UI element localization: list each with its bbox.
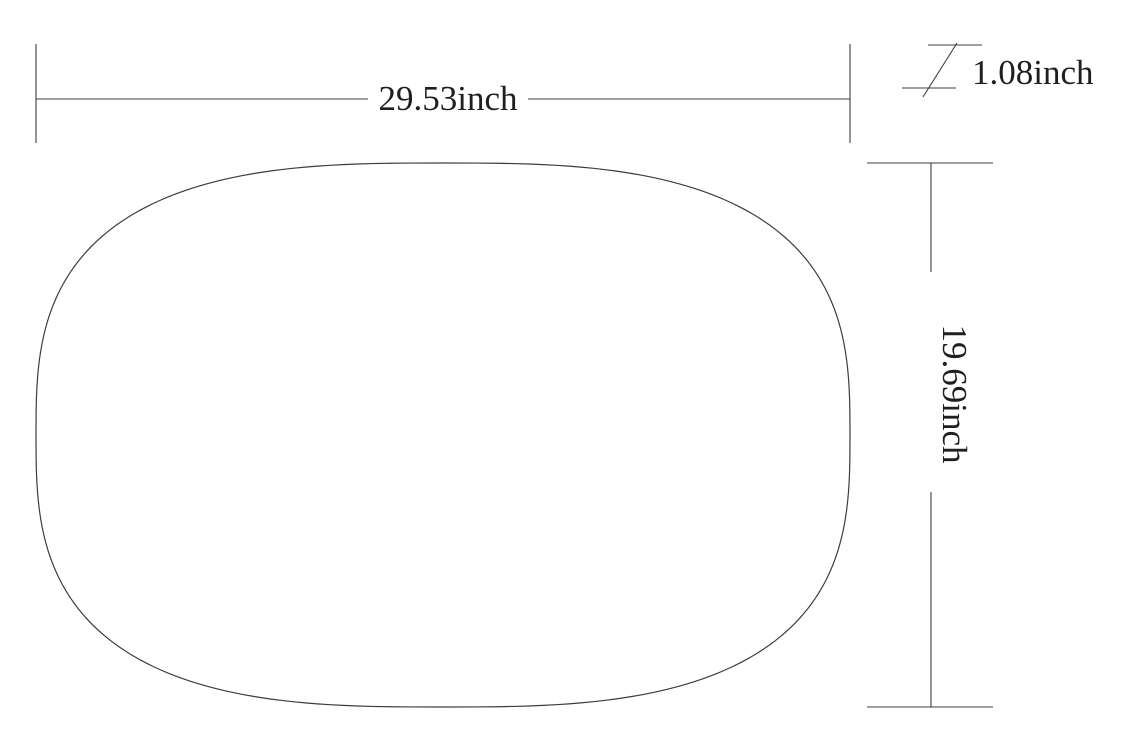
mat-outline-shape xyxy=(36,163,850,707)
width-dimension-label: 29.53inch xyxy=(378,79,518,118)
height-dimension: 19.69inch xyxy=(867,163,993,707)
thickness-symbol-diagonal xyxy=(923,43,957,97)
drawing-canvas: 29.53inch 19.69inch 1.08inch xyxy=(0,0,1126,730)
dimension-drawing: 29.53inch 19.69inch 1.08inch xyxy=(0,0,1126,730)
height-dimension-label: 19.69inch xyxy=(935,324,974,464)
thickness-dimension: 1.08inch xyxy=(902,43,1094,97)
thickness-dimension-label: 1.08inch xyxy=(972,53,1094,92)
width-dimension: 29.53inch xyxy=(36,44,850,143)
